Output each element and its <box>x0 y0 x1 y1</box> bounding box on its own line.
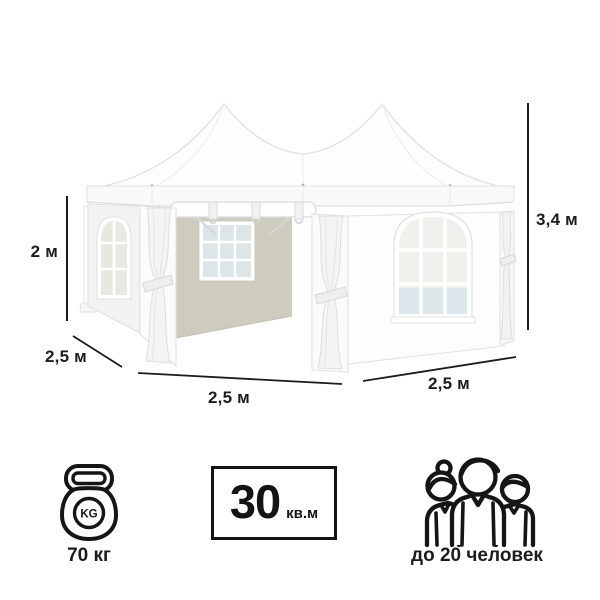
kettlebell-icon: KG <box>57 463 121 543</box>
tent-left-wall <box>88 204 140 333</box>
far-right-curtain-panel <box>500 211 516 345</box>
area-value: 30 <box>230 478 280 525</box>
kg-badge-text: KG <box>80 509 97 521</box>
front-left-curtain-panel <box>140 206 176 366</box>
tent-roof <box>87 104 514 189</box>
person-man-center <box>452 460 504 546</box>
capacity-label: до 20 человек <box>395 545 559 567</box>
area-box: 30 кв.м <box>211 466 337 540</box>
weight-label: 70 кг <box>47 545 131 567</box>
area-unit: кв.м <box>286 505 318 522</box>
tent-right-wall <box>348 212 504 364</box>
middle-curtain-panel <box>312 214 348 372</box>
dim-label-width-front: 2,5 м <box>196 388 262 408</box>
dim-label-width-right: 2,5 м <box>416 374 482 394</box>
dim-line-width-front <box>138 373 342 384</box>
dim-label-total-height: 3,4 м <box>536 210 578 230</box>
people-group-icon <box>414 452 538 548</box>
left-arched-window <box>97 217 131 299</box>
dim-label-wall-height: 2 м <box>14 242 58 262</box>
interior-window <box>199 221 255 281</box>
product-infographic: 2 м 3,4 м 2,5 м 2,5 м 2,5 м KG 70 кг 30 … <box>0 0 600 600</box>
dim-label-depth-left: 2,5 м <box>33 347 99 367</box>
right-arched-window <box>391 212 475 323</box>
tent-diagram <box>0 0 600 440</box>
